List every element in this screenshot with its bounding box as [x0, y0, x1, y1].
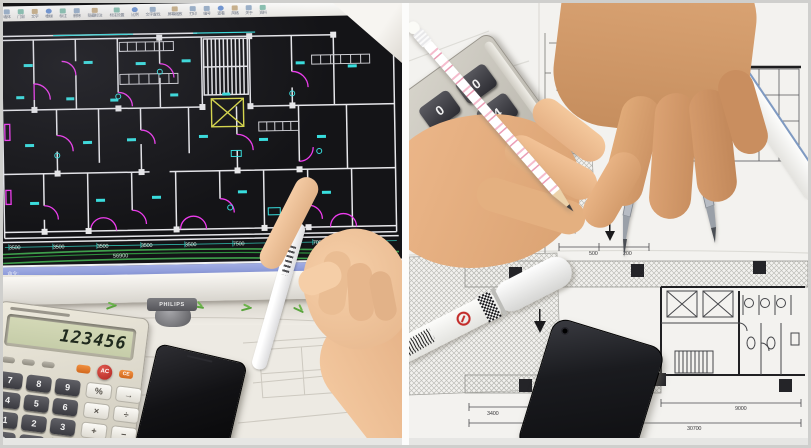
cad-toolbar-item: 楼梯 [45, 8, 53, 18]
cad-toolbar-item: 比例 [131, 7, 139, 17]
calculator-key: 2 [21, 414, 48, 433]
toolbar-icon [114, 7, 120, 12]
cad-dimension-label: 3500 [141, 243, 153, 249]
elevator-symbol [211, 98, 243, 127]
cad-toolbar-item: 编号 [203, 5, 211, 15]
cad-toolbar-item: 文字查找 [145, 6, 161, 16]
calculator-operator-keys: % → × ÷ + − = [78, 382, 143, 445]
cad-toolbar-item: 打印 [189, 6, 197, 16]
toolbar-icon [4, 9, 10, 14]
panel-divider [402, 3, 409, 445]
cad-dimension-label: 3500 [9, 245, 21, 251]
calculator-key: % [85, 382, 113, 401]
photo-bottom-edge [409, 438, 808, 445]
toolbar-icon [92, 7, 98, 12]
calculator-key [41, 361, 55, 369]
photo-bottom-edge [3, 438, 402, 445]
calculator-key: 4 [3, 391, 21, 410]
calculator-ce-key: CE [119, 370, 134, 380]
calculator-key [22, 359, 36, 367]
toolbar-icon [204, 5, 210, 10]
toolbar-icon [172, 6, 178, 11]
toolbar-icon [46, 8, 52, 13]
cad-toolbar-item: 隐藏标注 [87, 7, 103, 17]
calculator-key: 5 [23, 394, 50, 413]
calculator-key: → [115, 385, 143, 404]
calculator-key: ÷ [112, 405, 140, 424]
cad-toolbar-item: 墙体 [3, 9, 11, 19]
blueprint-dimension-label: 3400 [487, 411, 498, 417]
blueprint-dimension-label: 9000 [735, 406, 746, 412]
divider-compass [574, 25, 754, 265]
cad-toolbar-item: 关于 [245, 5, 253, 15]
calculator-key: × [83, 401, 111, 420]
calculator-key: 9 [54, 378, 81, 397]
cad-toolbar-item: 标注设置 [109, 7, 125, 17]
cad-dimension-label: 3500 [97, 244, 109, 250]
calculator-key: 6 [52, 398, 79, 417]
toolbar-icon [32, 8, 38, 13]
toolbar-icon [218, 5, 224, 10]
cad-toolbar-item: 屏幕缩放 [167, 6, 183, 16]
cad-dimension-label: 3500 [53, 244, 65, 250]
cad-toolbar-item: 资料 [259, 4, 267, 14]
toolbar-icon [246, 5, 252, 10]
right-photo-blueprint-drafting: 50020020003400900030700 0014 [409, 3, 808, 445]
calculator-key: 1 [3, 410, 19, 429]
blueprint-dimension-label: 30700 [687, 426, 701, 432]
toolbar-icon [260, 4, 266, 9]
calculator-display-value: 123456 [59, 326, 133, 355]
cad-toolbar-item: 删除 [73, 8, 81, 18]
toolbar-icon [60, 8, 66, 13]
cad-dimension-label: 7000 [313, 240, 325, 246]
door-symbols [4, 56, 357, 232]
elevator-and-fixtures [661, 291, 799, 375]
photo-frame: 墙体门窗文字楼梯标注删除隐藏标注标注设置比例文字查找屏幕缩放打印编号查看风格关于… [0, 0, 811, 448]
monitor-screen: 墙体门窗文字楼梯标注删除隐藏标注标注设置比例文字查找屏幕缩放打印编号查看风格关于… [3, 3, 402, 275]
cad-toolbar-item: 标注 [59, 8, 67, 18]
calculator-number-keys: 789456123000· [3, 371, 81, 445]
left-photo-cad-monitor: 墙体门窗文字楼梯标注删除隐藏标注标注设置比例文字查找屏幕缩放打印编号查看风格关于… [3, 3, 402, 445]
cad-toolbar-item: 查看 [217, 5, 225, 15]
calculator-key: 3 [49, 418, 76, 437]
toolbar-icon [132, 7, 138, 12]
command-prompt-text: 命令: [7, 270, 19, 275]
calculator: 123456 AC CE 789456123000· % → × ÷ [3, 300, 150, 445]
calculator-ac-key: AC [96, 363, 113, 380]
cad-dimension-label: 3500 [185, 242, 197, 248]
calculator-key: 7 [3, 371, 23, 390]
monitor-brand-logo: PHILIPS [147, 298, 197, 311]
cad-floor-plan-drawing [3, 15, 400, 266]
calculator-key: 8 [25, 374, 52, 393]
toolbar-icon [150, 6, 156, 11]
cad-dimension-label: 7500 [233, 241, 245, 247]
cad-total-dimension: 56900 [113, 253, 128, 259]
toolbar-icon [18, 9, 24, 14]
cad-toolbar-item: 文字 [31, 8, 39, 18]
calculator-key [3, 356, 15, 364]
calculator-key [76, 364, 91, 374]
cad-toolbar-item: 门窗 [17, 9, 25, 19]
toolbar-icon [74, 8, 80, 13]
cad-toolbar-item: 风格 [231, 5, 239, 15]
toolbar-icon [190, 6, 196, 11]
toolbar-icon [232, 5, 238, 10]
